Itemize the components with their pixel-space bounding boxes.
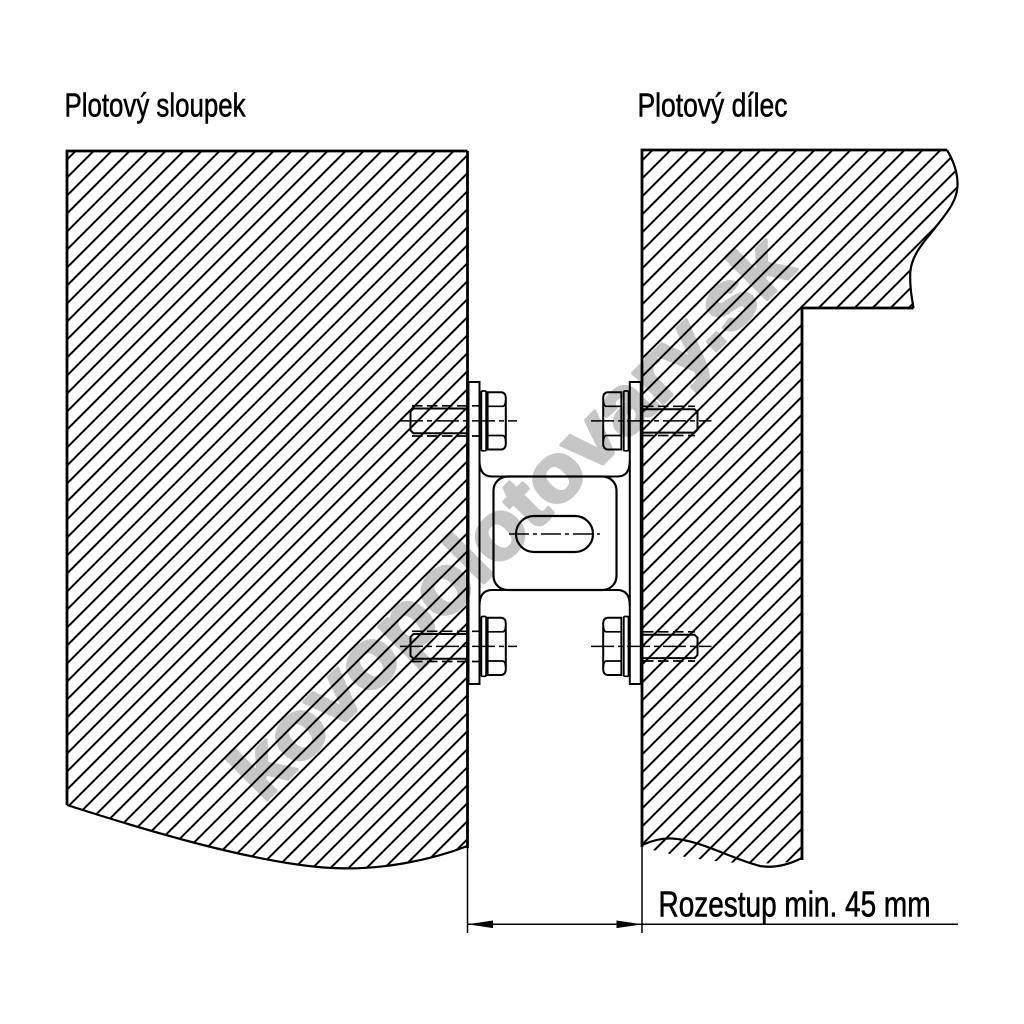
svg-text:Plotový sloupek: Plotový sloupek — [65, 87, 246, 124]
svg-text:Rozestup min. 45 mm: Rozestup min. 45 mm — [659, 884, 931, 925]
svg-text:Plotový dílec: Plotový dílec — [638, 87, 788, 124]
